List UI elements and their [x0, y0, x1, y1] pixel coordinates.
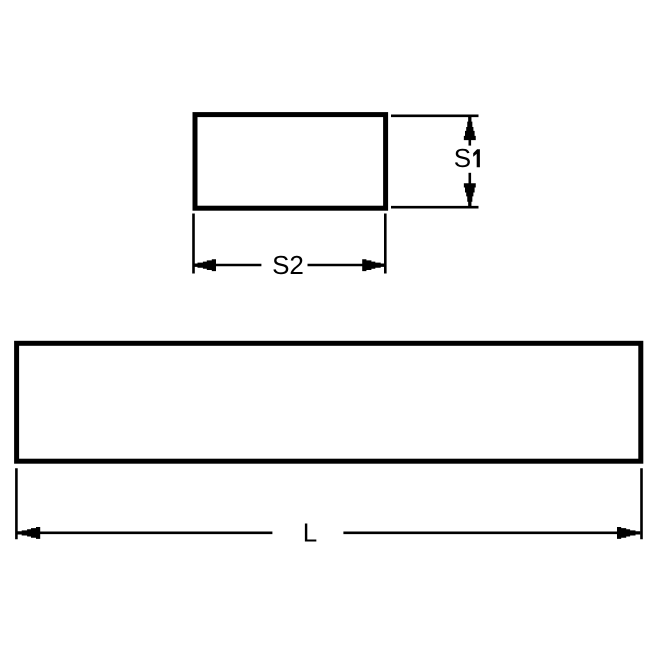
svg-text:L: L	[303, 518, 317, 548]
svg-text:S2: S2	[272, 250, 304, 280]
svg-text:S: S	[454, 143, 471, 173]
